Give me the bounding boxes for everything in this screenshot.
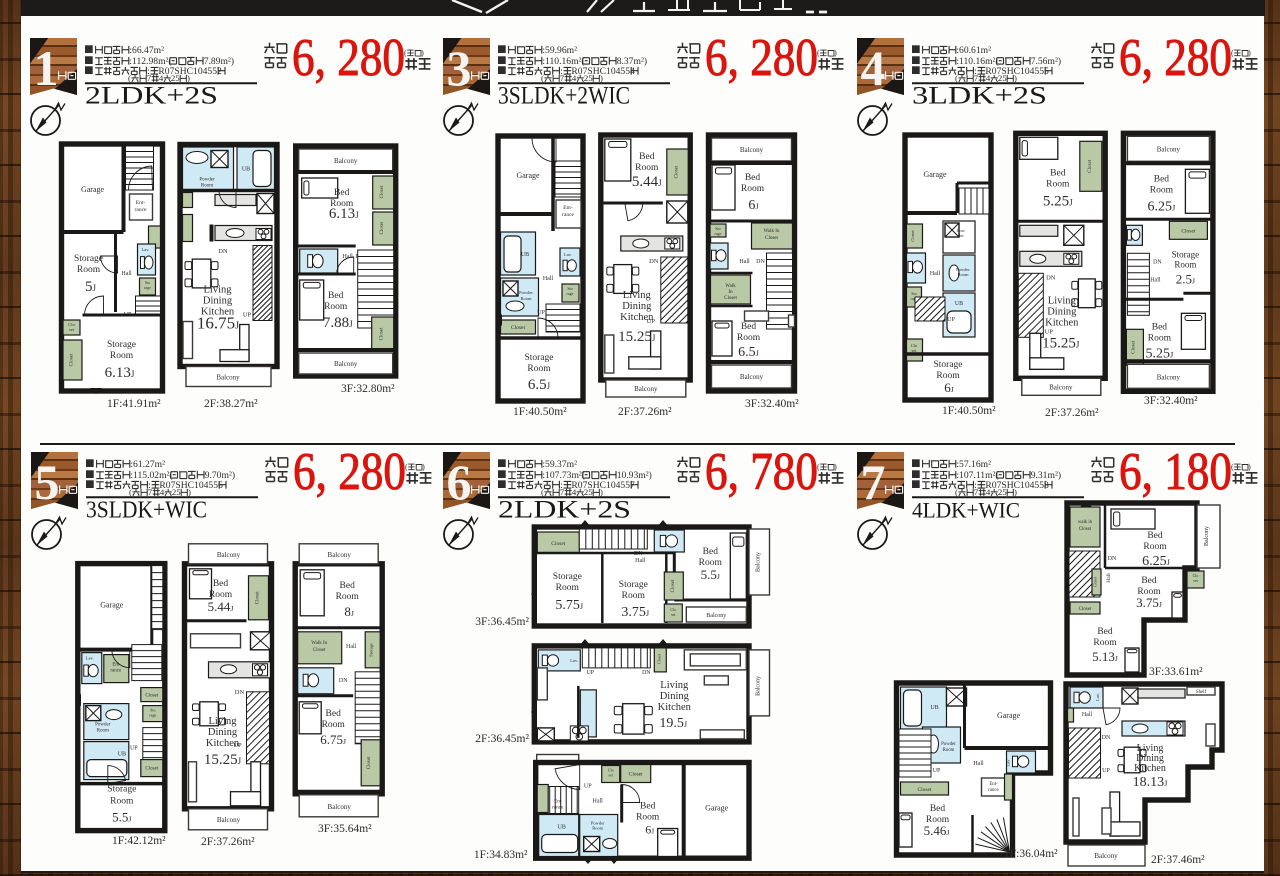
svg-text:Room: Room [520,296,532,301]
svg-text:Storage: Storage [553,572,582,582]
svg-text:Lav: Lav [1006,759,1011,767]
svg-text:Powder: Powder [941,742,956,747]
svg-text:Balcony: Balcony [217,551,241,559]
svg-text:2LDK+2S: 2LDK+2S [498,497,631,524]
svg-text:Bed: Bed [930,804,946,814]
svg-text:Balcony: Balcony [1094,852,1118,860]
svg-text:Closet: Closet [1079,607,1092,612]
svg-text::60.61m²: :60.61m² [956,45,991,56]
svg-text:6.13J: 6.13J [105,365,135,381]
svg-text:6, 780: 6, 780 [705,443,818,501]
svg-text::61.27m²: :61.27m² [130,459,165,470]
svg-text:Room: Room [1150,185,1174,195]
svg-text:1F:40.50m²: 1F:40.50m² [513,406,567,418]
svg-text:): ) [1248,49,1251,58]
svg-text:Living: Living [623,290,652,301]
svg-text:Balcony: Balcony [706,613,726,619]
svg-text:Garage: Garage [516,171,540,180]
svg-text:Ent-: Ent- [136,200,146,206]
svg-text:Room: Room [201,184,213,189]
svg-text:1F:34.83m²: 1F:34.83m² [474,849,528,861]
svg-text:Hall: Hall [346,644,357,650]
svg-text:Storage: Storage [933,360,962,370]
svg-text:5: 5 [35,454,60,510]
svg-text:Closet: Closet [380,221,385,234]
svg-text:Kitchen: Kitchen [1045,317,1079,328]
svg-text:): ) [1248,463,1251,472]
svg-text:3: 3 [447,40,472,96]
svg-text:Room: Room [636,813,660,823]
svg-text:Living: Living [1048,295,1077,306]
svg-text:15.25J: 15.25J [618,329,656,345]
svg-text:rance: rance [135,207,147,213]
svg-text:(: ( [817,463,820,472]
svg-text:R07SHC104555: R07SHC104555 [985,66,1049,77]
svg-text::57.16m²: :57.16m² [956,459,991,470]
svg-text:Balcony: Balcony [328,551,352,559]
svg-text:Garage: Garage [100,601,124,610]
svg-text:Closet: Closet [256,591,261,604]
svg-text:UB: UB [242,167,250,173]
svg-text:): ) [421,49,424,58]
svg-text:): ) [1014,487,1017,497]
svg-text:(: ( [817,49,820,58]
svg-text:Closet: Closet [1093,576,1098,587]
svg-text:Storage: Storage [1172,249,1200,259]
svg-text:Balcony: Balcony [217,816,241,824]
svg-text:Lav.: Lav. [570,658,578,663]
svg-text:Balcony: Balcony [216,374,240,382]
svg-text:2F:37.26m²: 2F:37.26m² [618,406,672,418]
svg-text:DN: DN [1046,274,1056,281]
svg-text:Storage: Storage [74,254,103,264]
svg-text:rage: rage [144,285,151,290]
svg-text:5.25J: 5.25J [1043,193,1073,209]
svg-text:Bed: Bed [328,291,344,301]
svg-text::59.96m²: :59.96m² [542,45,577,56]
svg-text:UB: UB [118,752,126,758]
svg-text:6, 180: 6, 180 [1119,443,1232,501]
svg-text:Closet: Closet [671,579,676,592]
svg-text:1F:41.91m²: 1F:41.91m² [107,398,161,410]
svg-text:16.75J: 16.75J [197,314,239,333]
svg-text:Garage: Garage [81,185,105,194]
svg-text:3SLDK+2WIC: 3SLDK+2WIC [498,83,630,110]
svg-text:6, 280: 6, 280 [705,29,818,87]
svg-text:Room: Room [110,797,134,807]
svg-text:rance: rance [552,806,564,811]
svg-text:DN: DN [339,678,348,684]
svg-text:UP: UP [933,768,941,774]
svg-text:Closet: Closet [656,653,661,664]
svg-text:rage: rage [715,231,722,236]
svg-text:3LDK+2S: 3LDK+2S [912,83,1047,110]
svg-text:Room: Room [635,163,659,173]
svg-text:6: 6 [447,454,472,510]
svg-text:3.75J: 3.75J [1136,595,1162,610]
svg-text:(: ( [405,463,408,472]
svg-text:5.44J: 5.44J [632,174,662,190]
svg-text:): ) [188,487,191,497]
svg-text:Room: Room [556,583,580,593]
svg-text:Room: Room [336,592,360,602]
svg-text:Walk In: Walk In [764,229,780,234]
svg-text:Dining: Dining [208,727,238,738]
svg-text:DN: DN [1108,556,1117,562]
svg-text:UP: UP [243,312,252,319]
svg-text:walk in: walk in [1078,520,1093,525]
svg-text:7: 7 [148,487,153,497]
svg-text:Kitchen: Kitchen [1134,763,1166,774]
svg-text:Shelf: Shelf [1196,690,1207,695]
svg-text:Dining: Dining [203,296,233,307]
svg-text:Powder: Powder [95,723,111,728]
svg-text:Room: Room [943,748,955,753]
svg-text:3SLDK+WIC: 3SLDK+WIC [86,498,207,524]
svg-text:Lav.: Lav. [86,656,94,661]
svg-text:Closet: Closet [70,353,75,366]
svg-text:4: 4 [986,487,991,497]
svg-text:2LDK+2S: 2LDK+2S [85,83,218,110]
svg-text:DN: DN [642,670,651,676]
svg-text:Closet: Closet [629,772,644,778]
svg-text:Hall: Hall [121,271,132,277]
svg-text:1: 1 [34,40,59,96]
svg-text:6, 280: 6, 280 [292,29,405,87]
svg-text:Closet: Closet [313,648,326,653]
svg-text:Room: Room [1046,179,1070,189]
svg-text:Hall: Hall [739,259,750,265]
svg-text:5.25J: 5.25J [1146,346,1175,361]
svg-text:DN: DN [235,689,245,696]
svg-text:UP: UP [537,310,545,316]
svg-text:Dining: Dining [1047,306,1077,317]
svg-text:Room: Room [592,826,604,831]
svg-text:R07SHC104552: R07SHC104552 [158,66,222,77]
svg-text:Garage: Garage [923,170,947,179]
svg-text:Closet: Closet [724,296,737,301]
svg-text:(: ( [955,487,958,497]
svg-text:R07SHC104554: R07SHC104554 [571,66,635,77]
svg-text:3F:35.64m²: 3F:35.64m² [318,823,372,835]
svg-text:3F:36.45m²: 3F:36.45m² [475,616,529,628]
svg-text:3F:33.61m²: 3F:33.61m² [1149,666,1203,678]
svg-text:6.25J: 6.25J [1148,199,1177,214]
svg-text:6, 280: 6, 280 [1119,29,1232,87]
svg-text:UP: UP [586,670,594,676]
svg-text:25: 25 [172,487,181,497]
svg-text:15.25J: 15.25J [204,752,242,768]
svg-text:rage: rage [149,713,156,718]
svg-text:UP: UP [1045,328,1054,335]
svg-text:Hall: Hall [930,271,941,277]
svg-text:Room: Room [737,333,761,343]
svg-text:Room: Room [1093,638,1117,648]
svg-text:): ) [834,49,837,58]
svg-text:6, 280: 6, 280 [293,443,406,501]
svg-text:R07SHC104556: R07SHC104556 [159,480,223,491]
svg-text:Living: Living [204,285,233,296]
svg-text:3F:32.40m²: 3F:32.40m² [745,398,799,410]
svg-text:Closet: Closet [674,165,679,178]
svg-text:Garage: Garage [997,711,1021,720]
svg-text:DN: DN [649,258,659,265]
svg-text:UP: UP [584,784,592,790]
svg-text:UB: UB [930,705,938,711]
svg-text:2F:37.46m²: 2F:37.46m² [1151,854,1205,866]
svg-text:Kitchen: Kitchen [658,702,692,713]
svg-text:Dining: Dining [622,301,652,312]
svg-text:Room: Room [77,265,101,275]
svg-text:Bed: Bed [340,581,356,591]
svg-text:DN: DN [1153,259,1162,265]
svg-text:Ent: Ent [554,800,562,805]
svg-text:Storage: Storage [369,643,374,657]
svg-text:Closet: Closet [551,541,566,547]
svg-text:Room: Room [527,364,551,374]
svg-text:Balcony: Balcony [1049,383,1073,391]
svg-text:6.13J: 6.13J [329,206,359,222]
svg-text:Hall: Hall [1106,573,1112,583]
svg-text:Living: Living [209,716,238,727]
svg-text:Closet: Closet [380,327,385,340]
svg-text:6.75J: 6.75J [320,732,346,747]
svg-text:Room: Room [1174,259,1196,269]
svg-text:4: 4 [861,40,886,96]
svg-text:Storage: Storage [107,785,136,795]
svg-text:Bed: Bed [1154,174,1170,184]
svg-text:rance: rance [562,212,574,218]
svg-text:Storage: Storage [619,580,648,590]
svg-text:UB: UB [521,252,529,258]
svg-text:Balcony: Balcony [634,385,658,393]
svg-text:UB: UB [558,825,566,831]
svg-text:5.75J: 5.75J [555,598,584,613]
svg-text:(: ( [404,49,407,58]
svg-text:Bed: Bed [741,322,757,332]
svg-text:2F:37.26m²: 2F:37.26m² [201,836,255,848]
svg-text:Hall: Hall [635,558,646,564]
svg-text:(: ( [129,487,132,497]
svg-text:7.88J: 7.88J [323,315,353,331]
svg-text:Hall: Hall [1082,712,1093,718]
svg-text:Closet: Closet [511,325,526,331]
svg-text:): ) [834,463,837,472]
svg-text:Bed: Bed [1147,531,1163,541]
svg-text:Bed: Bed [640,802,656,812]
svg-text:rance: rance [110,669,122,674]
svg-text:Room: Room [622,591,646,601]
svg-text:Bed: Bed [334,188,350,198]
svg-text:Room: Room [1148,333,1172,343]
svg-text:Hall: Hall [593,799,604,805]
svg-text:2F:36.45m²: 2F:36.45m² [475,733,529,745]
svg-text:Closet: Closet [765,236,778,241]
svg-text:Bed: Bed [639,152,655,162]
svg-text:Balcony: Balcony [334,360,358,368]
svg-text:rance: rance [988,788,998,793]
svg-text:Bed: Bed [326,709,342,719]
svg-text:Lav.: Lav. [1095,693,1100,701]
svg-text:3F:32.80m²: 3F:32.80m² [341,383,395,395]
svg-text:Walk In: Walk In [311,641,327,646]
svg-text:Powder: Powder [199,178,215,183]
svg-text:Bed: Bed [703,547,719,557]
svg-text:Balcony: Balcony [755,552,761,572]
svg-text:In: In [728,290,733,295]
svg-text:Hall: Hall [543,276,554,282]
svg-text:Hall: Hall [973,761,984,767]
svg-text:Room: Room [322,720,346,730]
svg-text:DN: DN [1102,735,1111,741]
svg-text:1F:42.12m²: 1F:42.12m² [112,835,166,847]
svg-text:7: 7 [974,487,979,497]
svg-text:der: der [958,233,964,238]
svg-text:Closet: Closet [367,756,372,769]
svg-text:1F:40.50m²: 1F:40.50m² [942,405,996,417]
svg-text:Bed: Bed [1141,576,1157,586]
svg-text:Balcony: Balcony [1157,373,1181,381]
svg-text:): ) [422,463,425,472]
svg-text:Powder: Powder [519,290,533,295]
svg-text:Room: Room [97,729,109,734]
svg-text:Balcony: Balcony [334,157,358,165]
svg-text:Closet: Closet [380,185,385,198]
svg-text:Room: Room [741,184,765,194]
svg-text:R07SHC104558: R07SHC104558 [985,480,1049,491]
svg-text:Storage: Storage [524,353,553,363]
svg-text:Walk: Walk [725,284,736,289]
svg-text:19.5J: 19.5J [659,716,688,731]
svg-text:Living: Living [660,680,689,691]
svg-text:25: 25 [998,487,1007,497]
svg-text:Kitchen: Kitchen [620,312,654,323]
svg-text:Balcony: Balcony [1157,145,1181,153]
svg-text:Balcony: Balcony [755,676,761,696]
svg-text:Bed: Bed [745,173,761,183]
svg-text::66.47m²: :66.47m² [129,45,164,56]
svg-text:5.44J: 5.44J [208,599,234,614]
svg-text:Closet: Closet [145,694,158,699]
svg-text:Ent-: Ent- [563,205,573,211]
svg-text:4: 4 [160,487,165,497]
svg-text:Balcony: Balcony [1204,526,1210,546]
svg-text:DN: DN [218,248,228,255]
svg-text:2F:38.27m²: 2F:38.27m² [204,398,258,410]
svg-text:Closet: Closet [1088,159,1093,172]
svg-text:UP: UP [130,746,138,752]
svg-text:(: ( [1231,463,1234,472]
svg-text:Closet: Closet [145,767,158,772]
svg-text:1F:36.04m²: 1F:36.04m² [1004,848,1058,860]
svg-text:Balcony: Balcony [740,146,764,154]
svg-text:Closet: Closet [1181,228,1196,234]
svg-text:Lav.: Lav. [564,252,572,257]
svg-text:7: 7 [861,454,886,510]
svg-text:DN: DN [756,259,765,265]
svg-text:Closet: Closet [1131,340,1136,353]
svg-text:Dining: Dining [660,691,690,702]
svg-text:Bed: Bed [1097,627,1113,637]
svg-text:3F:32.40m²: 3F:32.40m² [1144,395,1198,407]
svg-text:4LDK+WIC: 4LDK+WIC [912,498,1020,523]
svg-text:Bed: Bed [1050,168,1066,178]
svg-text:Closet: Closet [1079,527,1092,532]
svg-text:5.46J: 5.46J [924,823,950,838]
svg-text:Kitchen: Kitchen [206,738,240,749]
svg-text:Bed: Bed [1152,322,1168,332]
svg-text:set: set [69,327,75,332]
svg-text:2F:37.26m²: 2F:37.26m² [1045,407,1099,419]
svg-text:Bed: Bed [213,579,229,589]
svg-text:Garage: Garage [705,804,729,813]
svg-text:UP: UP [1102,768,1110,774]
svg-text:18.13J: 18.13J [1133,775,1169,790]
svg-text:Storage: Storage [107,340,136,350]
svg-text:UB: UB [955,301,963,307]
svg-text:15.25J: 15.25J [1042,335,1080,351]
svg-text:UP: UP [947,317,955,323]
svg-text:Closet: Closet [910,230,915,242]
svg-text:(: ( [1231,49,1234,58]
svg-text:Balcony: Balcony [740,373,764,381]
svg-text:Lav.: Lav. [142,247,150,252]
svg-text:Room: Room [110,351,134,361]
svg-text:Closet: Closet [917,787,932,793]
svg-text:Room: Room [1143,542,1167,552]
svg-text:Balcony: Balcony [328,803,352,811]
svg-text:Hall: Hall [1150,277,1161,283]
svg-text:3.75J: 3.75J [621,605,650,620]
svg-text:Room: Room [957,272,969,277]
svg-text:rage: rage [567,291,574,296]
svg-text:5.13J: 5.13J [1092,649,1118,664]
svg-text:Ent-: Ent- [989,782,998,787]
svg-text:Room: Room [324,302,348,312]
svg-text:R07SHC104557: R07SHC104557 [571,480,635,491]
svg-text::59.37m²: :59.37m² [542,459,577,470]
